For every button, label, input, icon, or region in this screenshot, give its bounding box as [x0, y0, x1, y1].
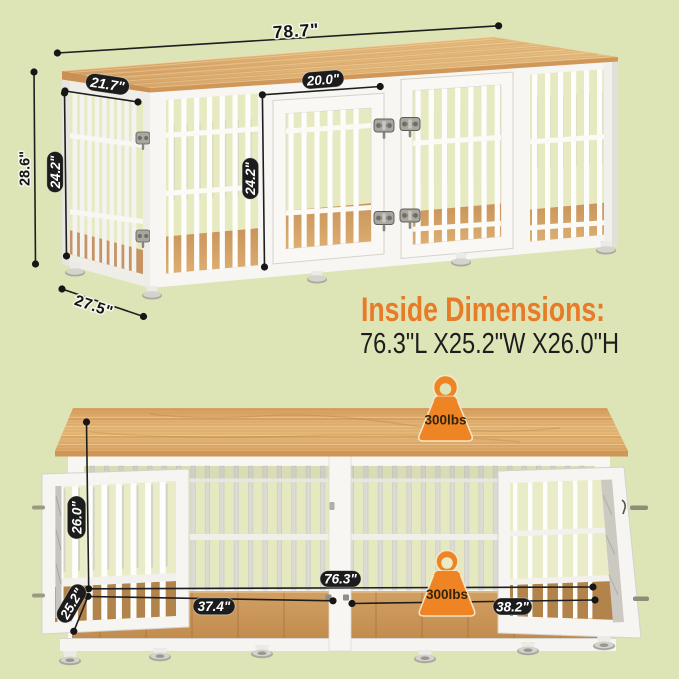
svg-text:78.7": 78.7" [272, 19, 320, 42]
svg-text:24.2": 24.2" [48, 155, 63, 189]
svg-text:300lbs: 300lbs [426, 587, 468, 602]
svg-text:Inside Dimensions:: Inside Dimensions: [361, 291, 605, 329]
svg-text:28.6": 28.6" [18, 151, 34, 186]
svg-text:38.2": 38.2" [496, 599, 529, 614]
svg-text:300lbs: 300lbs [424, 413, 466, 428]
svg-text:37.4": 37.4" [198, 599, 231, 614]
svg-text:76.3"L X25.2"W X26.0"H: 76.3"L X25.2"W X26.0"H [360, 328, 619, 360]
svg-text:24.2": 24.2" [243, 162, 258, 196]
svg-text:20.0": 20.0" [305, 71, 340, 89]
svg-text:76.3": 76.3" [324, 572, 357, 587]
svg-text:26.0": 26.0" [69, 501, 84, 535]
